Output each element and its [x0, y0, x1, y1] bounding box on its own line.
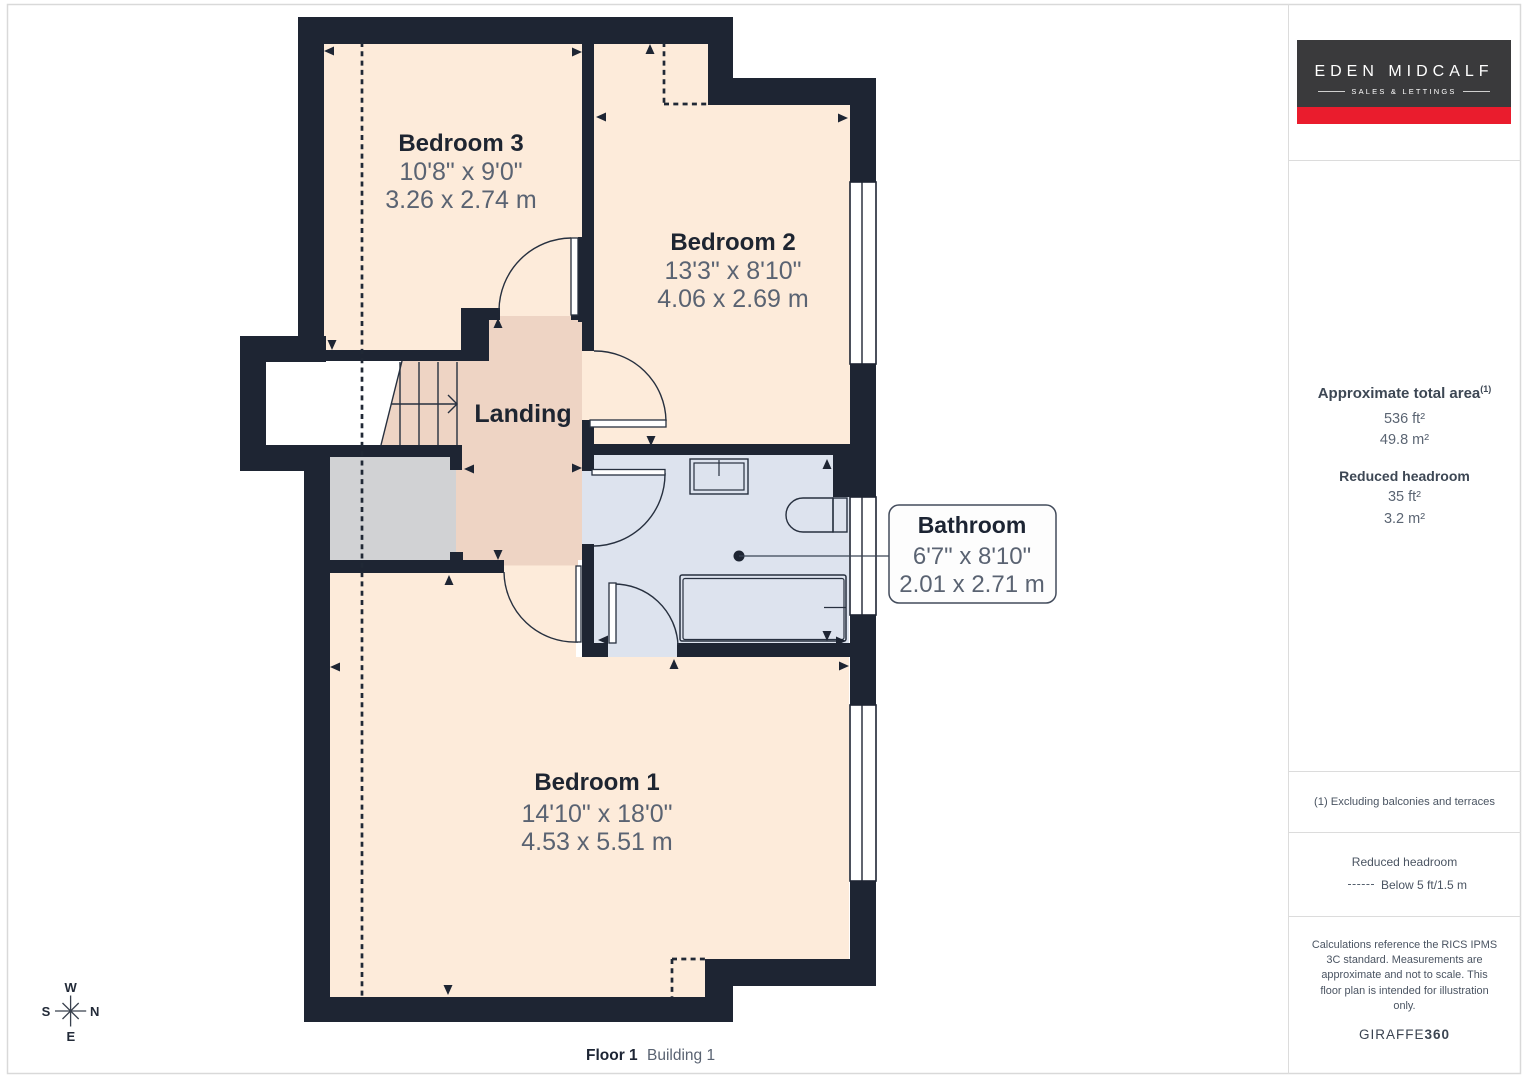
- svg-text:Bedroom 2: Bedroom 2: [670, 229, 795, 256]
- svg-text:6'7" x 8'10": 6'7" x 8'10": [913, 543, 1031, 570]
- svg-text:Bedroom 3: Bedroom 3: [398, 130, 523, 157]
- svg-text:Landing: Landing: [474, 400, 571, 428]
- svg-text:4.06 x 2.69 m: 4.06 x 2.69 m: [657, 285, 808, 313]
- svg-text:4.53 x 5.51 m: 4.53 x 5.51 m: [521, 828, 672, 856]
- svg-text:13'3" x 8'10": 13'3" x 8'10": [664, 257, 801, 285]
- svg-text:Bedroom 1: Bedroom 1: [534, 769, 659, 796]
- svg-text:W: W: [64, 980, 77, 995]
- svg-text:3.26 x 2.74 m: 3.26 x 2.74 m: [385, 186, 536, 214]
- svg-text:E: E: [66, 1029, 75, 1044]
- svg-text:Floor 1: Floor 1: [586, 1047, 638, 1064]
- svg-text:14'10" x 18'0": 14'10" x 18'0": [521, 800, 672, 828]
- svg-text:N: N: [90, 1004, 99, 1019]
- svg-text:2.01 x 2.71 m: 2.01 x 2.71 m: [899, 571, 1044, 598]
- svg-text:Building 1: Building 1: [647, 1047, 715, 1064]
- svg-text:10'8" x 9'0": 10'8" x 9'0": [399, 158, 522, 186]
- svg-text:S: S: [42, 1004, 51, 1019]
- svg-text:Bathroom: Bathroom: [918, 512, 1027, 538]
